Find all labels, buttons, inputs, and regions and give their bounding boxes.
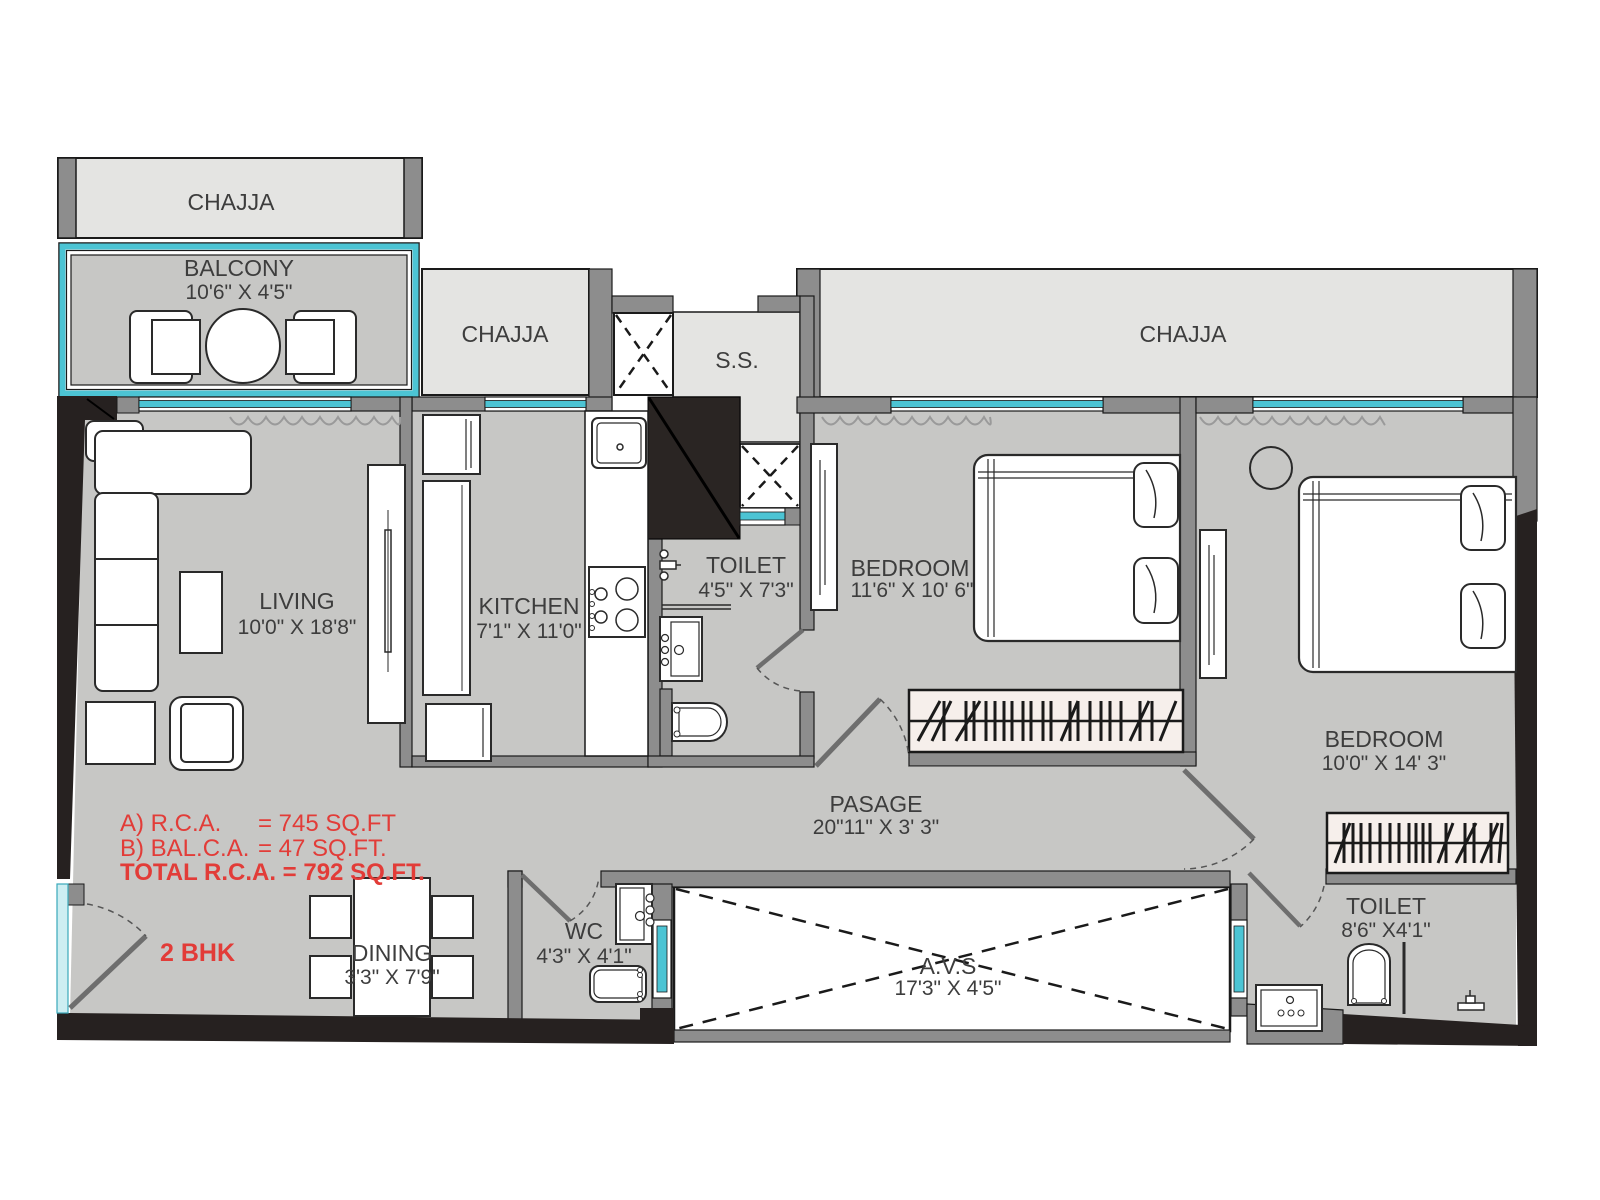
svg-text:10'0" X 14' 3": 10'0" X 14' 3" <box>1322 752 1447 775</box>
svg-text:7'1" X 11'0": 7'1" X 11'0" <box>476 620 581 643</box>
svg-text:DINING: DINING <box>352 940 433 966</box>
svg-text:BEDROOM: BEDROOM <box>851 555 970 581</box>
svg-text:= 745 SQ.FT: = 745 SQ.FT <box>258 810 396 837</box>
svg-text:KITCHEN: KITCHEN <box>479 593 580 619</box>
svg-text:= 47 SQ.FT.: = 47 SQ.FT. <box>258 835 387 862</box>
svg-text:BALCONY: BALCONY <box>184 255 294 281</box>
svg-text:B) BAL.C.A.: B) BAL.C.A. <box>120 835 249 862</box>
svg-text:8'6" X4'1": 8'6" X4'1" <box>1341 919 1431 942</box>
svg-text:4'3" X 4'1": 4'3" X 4'1" <box>536 945 631 968</box>
svg-text:3'3" X 7'9": 3'3" X 7'9" <box>344 966 439 989</box>
svg-text:LIVING: LIVING <box>259 588 334 614</box>
svg-text:BEDROOM: BEDROOM <box>1325 726 1444 752</box>
svg-text:A.V.S: A.V.S <box>920 953 977 979</box>
svg-text:CHAJJA: CHAJJA <box>462 321 550 347</box>
svg-text:TOILET: TOILET <box>706 552 786 578</box>
svg-text:11'6" X 10' 6": 11'6" X 10' 6" <box>851 579 974 602</box>
svg-text:TOILET: TOILET <box>1346 893 1426 919</box>
svg-text:20"11" X 3' 3": 20"11" X 3' 3" <box>813 816 939 839</box>
svg-text:A) R.C.A.: A) R.C.A. <box>120 810 221 837</box>
svg-text:4'5" X 7'3": 4'5" X 7'3" <box>698 579 793 602</box>
svg-text:TOTAL R.C.A. = 792 SQ.FT.: TOTAL R.C.A. = 792 SQ.FT. <box>120 859 425 886</box>
svg-text:WC: WC <box>565 918 603 944</box>
svg-text:CHAJJA: CHAJJA <box>188 189 276 215</box>
svg-text:CHAJJA: CHAJJA <box>1140 321 1228 347</box>
svg-text:10'0" X 18'8": 10'0" X 18'8" <box>238 616 357 639</box>
svg-text:10'6" X 4'5": 10'6" X 4'5" <box>186 281 293 304</box>
svg-text:2 BHK: 2 BHK <box>160 939 235 967</box>
svg-text:17'3" X 4'5": 17'3" X 4'5" <box>895 977 1002 1000</box>
svg-text:S.S.: S.S. <box>715 347 758 373</box>
svg-text:PASAGE: PASAGE <box>830 791 923 817</box>
